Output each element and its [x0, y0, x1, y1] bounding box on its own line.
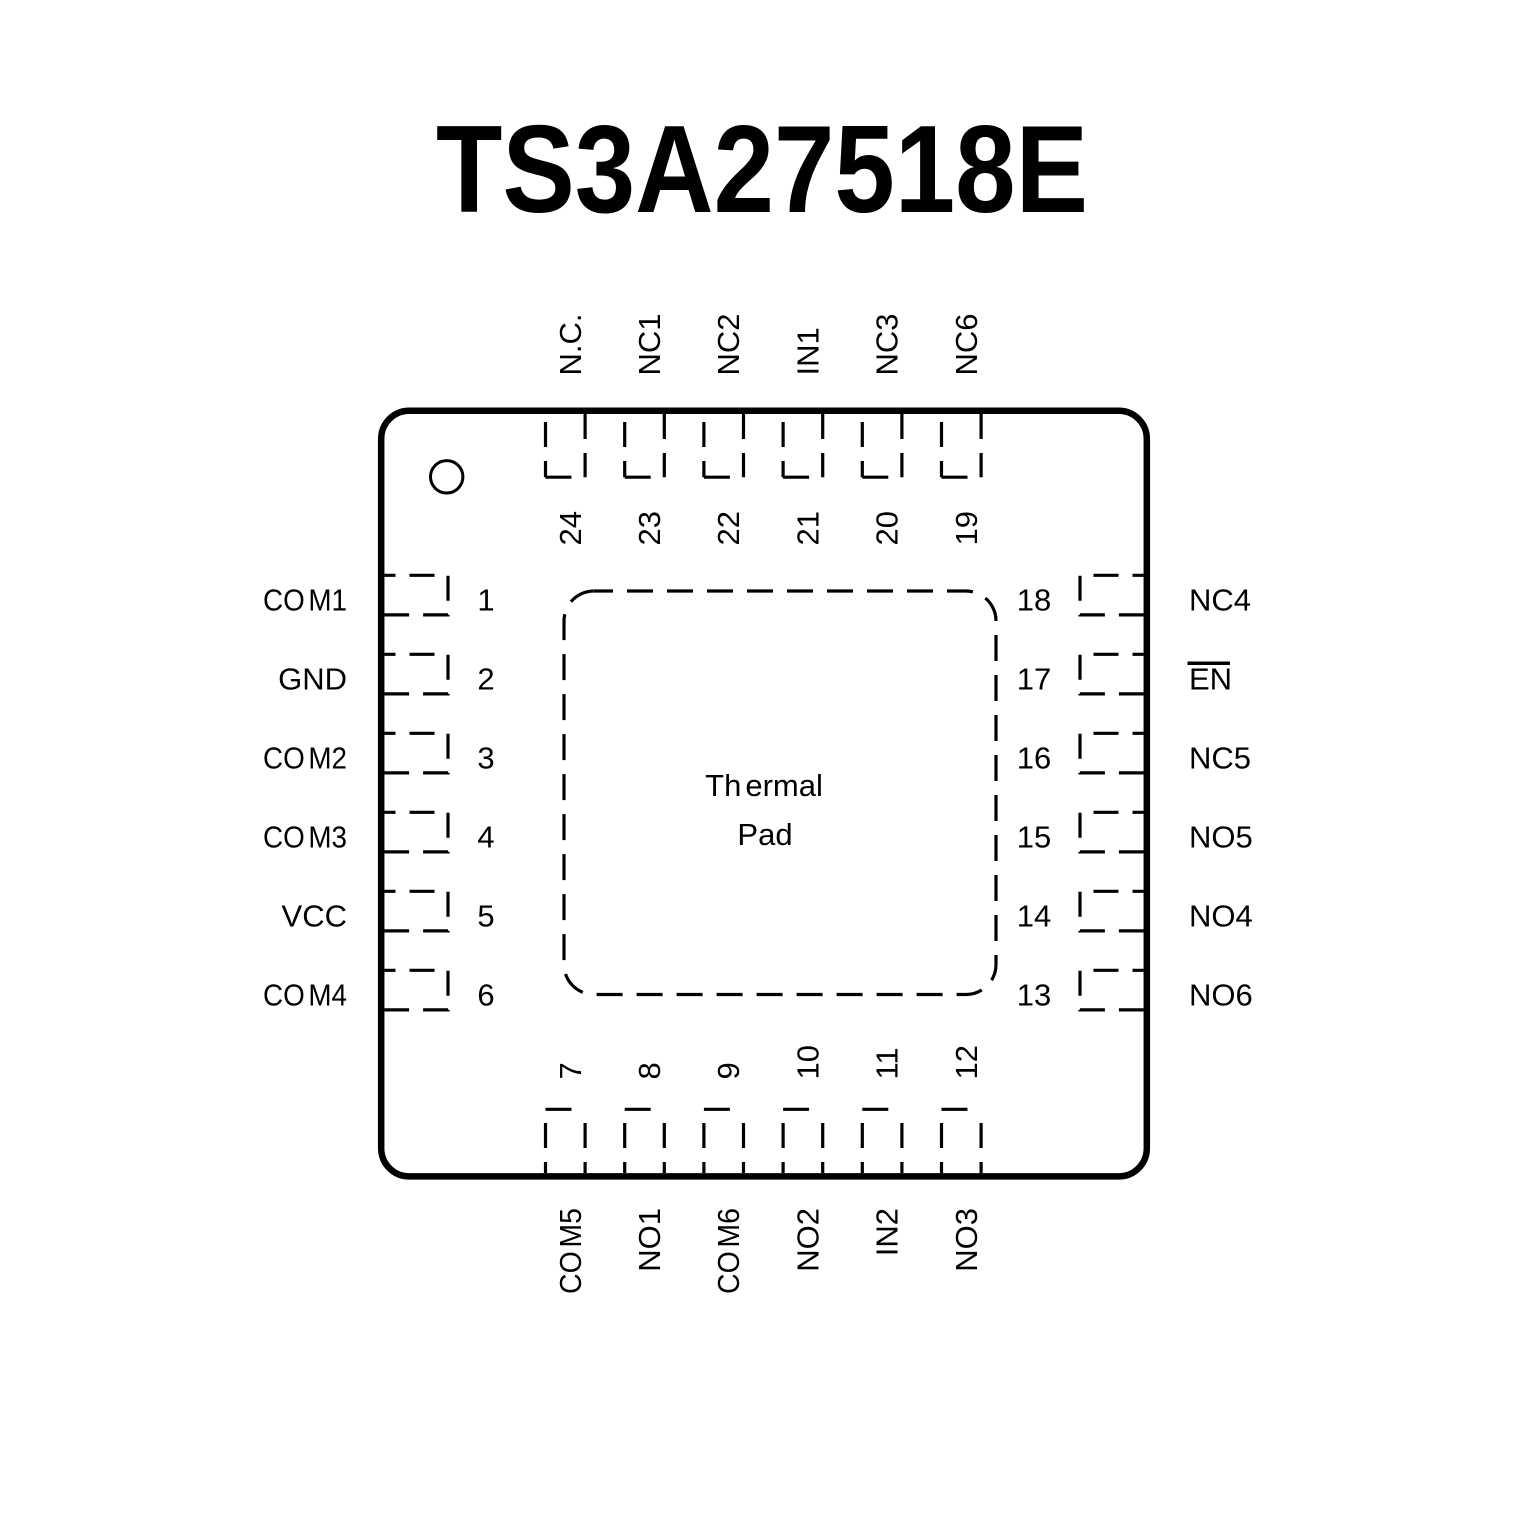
svg-text:5: 5: [477, 899, 494, 934]
svg-text:15: 15: [1017, 820, 1051, 855]
svg-text:NC1: NC1: [632, 313, 667, 375]
svg-text:IN2: IN2: [870, 1208, 905, 1256]
svg-text:NO2: NO2: [790, 1208, 825, 1272]
svg-text:23: 23: [632, 511, 667, 545]
svg-text:12: 12: [949, 1045, 984, 1079]
svg-text:NC4: NC4: [1189, 583, 1251, 618]
svg-text:NC3: NC3: [870, 313, 905, 375]
svg-text:IN1: IN1: [790, 327, 825, 375]
svg-text:EN: EN: [1189, 662, 1232, 697]
svg-text:7: 7: [553, 1062, 588, 1079]
svg-text:NO3: NO3: [949, 1208, 984, 1272]
svg-text:Pad: Pad: [737, 817, 792, 852]
svg-text:GND: GND: [278, 662, 347, 697]
svg-text:1: 1: [477, 583, 494, 618]
svg-text:11: 11: [870, 1047, 905, 1079]
svg-text:14: 14: [1017, 899, 1051, 934]
svg-text:4: 4: [477, 820, 494, 855]
svg-text:NO4: NO4: [1189, 899, 1253, 934]
svg-text:18: 18: [1017, 583, 1051, 618]
svg-text:NC6: NC6: [949, 313, 984, 375]
svg-text:8: 8: [632, 1062, 667, 1079]
svg-text:N.C.: N.C.: [553, 314, 588, 376]
svg-text:10: 10: [790, 1045, 825, 1079]
svg-text:NC5: NC5: [1189, 741, 1251, 776]
svg-text:Thermal: Thermal: [705, 768, 823, 803]
svg-text:NO6: NO6: [1189, 978, 1253, 1013]
svg-text:TS3A27518E: TS3A27518E: [436, 101, 1088, 239]
svg-text:3: 3: [477, 741, 494, 776]
svg-text:9: 9: [711, 1062, 746, 1079]
svg-text:20: 20: [870, 511, 905, 545]
svg-text:22: 22: [711, 511, 746, 545]
svg-text:19: 19: [949, 511, 984, 545]
svg-text:24: 24: [553, 511, 588, 545]
svg-text:VCC: VCC: [282, 899, 347, 934]
svg-text:NO5: NO5: [1189, 820, 1253, 855]
svg-text:16: 16: [1017, 741, 1051, 776]
svg-text:17: 17: [1017, 662, 1051, 697]
svg-text:NC2: NC2: [711, 313, 746, 375]
svg-text:13: 13: [1017, 978, 1051, 1013]
svg-text:NO1: NO1: [632, 1208, 667, 1272]
svg-text:6: 6: [477, 978, 494, 1013]
svg-text:21: 21: [790, 511, 825, 545]
svg-text:2: 2: [477, 662, 494, 697]
